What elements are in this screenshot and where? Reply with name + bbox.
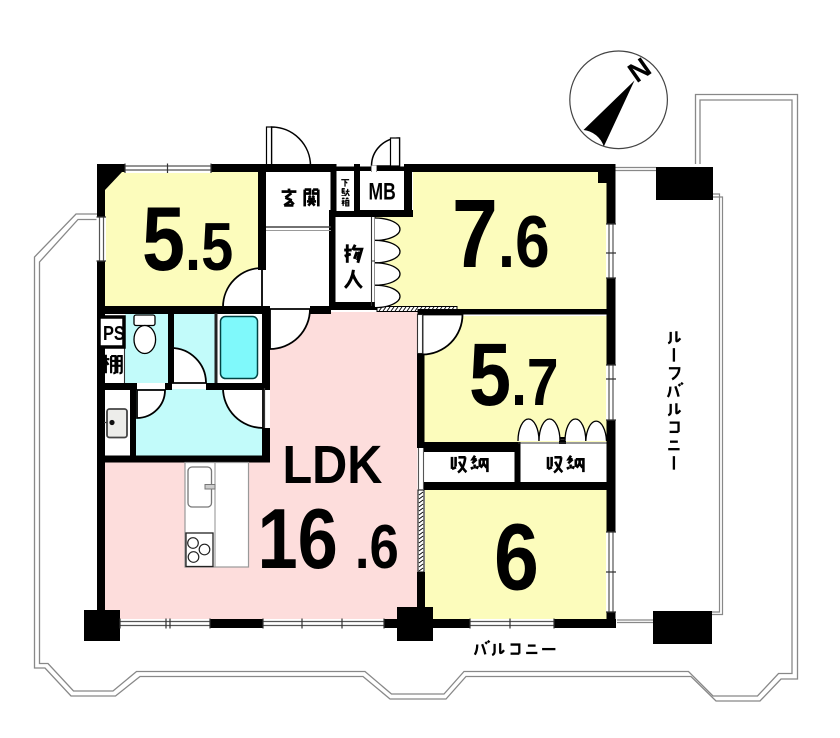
svg-text:LDK: LDK [283,434,383,495]
svg-text:6: 6 [494,503,539,610]
svg-text:PS: PS [103,321,125,344]
svg-text:MB: MB [369,179,396,205]
